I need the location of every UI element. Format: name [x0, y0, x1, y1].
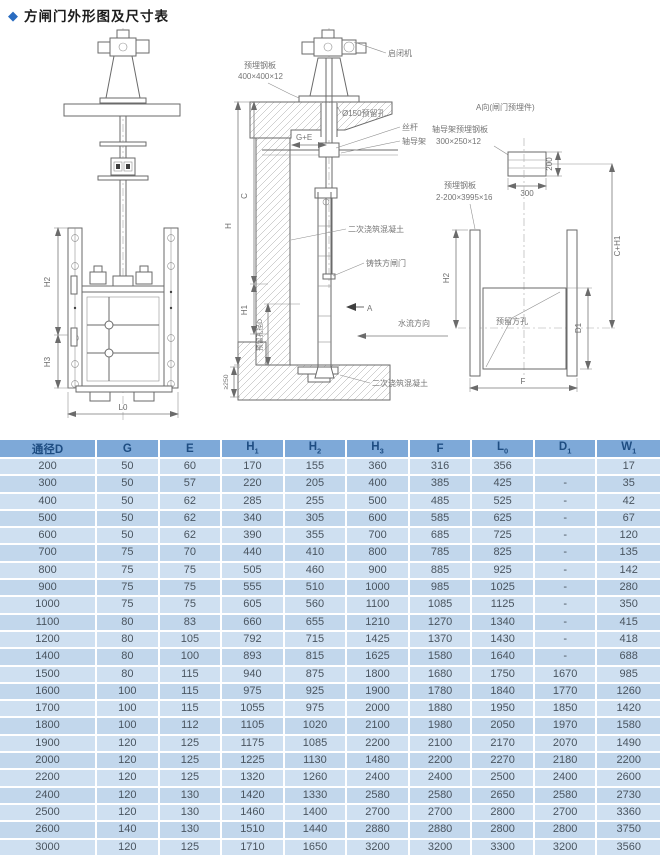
table-cell: 2100 [410, 736, 473, 753]
table-cell: 1770 [535, 684, 598, 701]
front-dim-h2: H2 [43, 276, 52, 287]
table-cell: 80 [97, 632, 160, 649]
table-cell: 255 [285, 494, 348, 511]
section-dim-hole: 预留孔径D [255, 319, 264, 351]
table-cell: 785 [410, 545, 473, 562]
table-cell: 2000 [0, 753, 97, 770]
table-row: 7007570440410800785825-135 [0, 545, 660, 562]
table-cell: 140 [97, 822, 160, 839]
table-cell: 792 [222, 632, 285, 649]
page-title-text: 方闸门外形图及尺寸表 [24, 5, 169, 25]
table-cell: 1210 [347, 615, 410, 632]
front-dim-l0: L0 [119, 403, 128, 412]
table-row: 160010011597592519001780184017701260 [0, 684, 660, 701]
table-row: 22001201251320126024002400250024002600 [0, 770, 660, 787]
header-cell: H3 [347, 440, 410, 459]
table-row: 4005062285255500485525-42 [0, 494, 660, 511]
table-cell: 1670 [535, 667, 598, 684]
table-cell: 1500 [0, 667, 97, 684]
table-cell: 2050 [472, 718, 535, 735]
label-concrete-top: 二次浇筑混凝土 [348, 224, 404, 234]
table-cell: - [535, 476, 598, 493]
table-cell: 985 [597, 667, 660, 684]
table-head-row: 通径DGEH1H2H3FL0D1W1 [0, 440, 660, 459]
table-cell: 2700 [347, 805, 410, 822]
table-cell: 80 [97, 667, 160, 684]
table-cell: 900 [347, 563, 410, 580]
table-cell: 115 [160, 667, 223, 684]
table-cell: 1900 [0, 736, 97, 753]
table-cell: 600 [0, 528, 97, 545]
table-cell: 3300 [472, 840, 535, 857]
table-cell: 350 [597, 597, 660, 614]
table-cell: 50 [97, 476, 160, 493]
table-cell: 2170 [472, 736, 535, 753]
table-cell: 1700 [0, 701, 97, 718]
table-cell: 2580 [535, 788, 598, 805]
table-cell: 1370 [410, 632, 473, 649]
table-cell: 3200 [535, 840, 598, 857]
table-cell: 2180 [535, 753, 598, 770]
table-row: 10007575605560110010851125-350 [0, 597, 660, 614]
table-cell: 700 [0, 545, 97, 562]
table-cell: 112 [160, 718, 223, 735]
a-dim-f: F [521, 377, 526, 386]
label-ge-dim: G+E [296, 133, 312, 142]
table-cell: 1260 [285, 770, 348, 787]
diamond-icon: ◆ [8, 9, 18, 22]
table-cell: 925 [285, 684, 348, 701]
table-row: 900757555551010009851025-280 [0, 580, 660, 597]
table-cell: 120 [97, 753, 160, 770]
table-cell: 1850 [535, 701, 598, 718]
table-cell: 100 [97, 684, 160, 701]
table-cell: 975 [222, 684, 285, 701]
label-embed-plate2: 预埋钢板 [444, 180, 476, 190]
table-cell: 125 [160, 770, 223, 787]
label-embed-plate2-size: 2-200×3995×16 [436, 193, 493, 202]
table-cell: 1085 [410, 597, 473, 614]
table-cell: - [535, 511, 598, 528]
table-cell: 400 [347, 476, 410, 493]
dimension-table-wrap: 通径DGEH1H2H3FL0D1W1 200506017015536031635… [0, 440, 660, 857]
table-cell: 125 [160, 753, 223, 770]
a-view-title: A向(闸门预埋件) [476, 102, 535, 112]
label-guide-plate-size: 300×250×12 [436, 137, 481, 146]
table-cell: 485 [410, 494, 473, 511]
table-row: 18001001121105102021001980205019701580 [0, 718, 660, 735]
table-cell: 555 [222, 580, 285, 597]
front-view-drawing: H2 H3 L0 [43, 28, 180, 422]
table-cell: 2200 [0, 770, 97, 787]
table-cell: 100 [97, 701, 160, 718]
table-cell: 205 [285, 476, 348, 493]
table-cell: 62 [160, 528, 223, 545]
table-cell: 2650 [472, 788, 535, 805]
table-cell: 340 [222, 511, 285, 528]
header-cell: 通径D [0, 440, 97, 459]
table-cell: 1800 [0, 718, 97, 735]
table-cell: 1680 [410, 667, 473, 684]
dimension-table: 通径DGEH1H2H3FL0D1W1 200506017015536031635… [0, 440, 660, 857]
section-dim-250: ≥250 [223, 374, 230, 389]
table-cell: 1105 [222, 718, 285, 735]
label-embed-plate: 预埋钢板 [244, 60, 276, 70]
table-cell: 280 [597, 580, 660, 597]
table-cell: 1480 [347, 753, 410, 770]
header-cell: W1 [597, 440, 660, 459]
table-cell: - [535, 649, 598, 666]
a-view-drawing: A向(闸门预埋件) 轴导架预埋钢板 300×250×12 300 200 预埋钢… [432, 102, 622, 392]
table-cell: 50 [97, 511, 160, 528]
table-cell: - [535, 632, 598, 649]
table-row: 20001201251225113014802200227021802200 [0, 753, 660, 770]
page-title: ◆ 方闸门外形图及尺寸表 [8, 5, 169, 25]
table-cell: 1780 [410, 684, 473, 701]
table-cell: 415 [597, 615, 660, 632]
table-row: 1500801159408751800168017501670985 [0, 667, 660, 684]
table-row: 19001201251175108522002100217020701490 [0, 736, 660, 753]
table-cell: 700 [347, 528, 410, 545]
table-cell: 975 [285, 701, 348, 718]
table-cell: 2700 [410, 805, 473, 822]
table-cell: 1510 [222, 822, 285, 839]
table-cell: 1950 [472, 701, 535, 718]
label-screw: 丝杆 [402, 122, 418, 132]
table-row: 24001201301420133025802580265025802730 [0, 788, 660, 805]
table-cell: 1085 [285, 736, 348, 753]
table-cell: - [535, 615, 598, 632]
table-cell: 115 [160, 684, 223, 701]
table-cell: 2200 [410, 753, 473, 770]
table-cell: 115 [160, 701, 223, 718]
label-flow-direction: 水流方向 [398, 318, 430, 328]
table-cell: 300 [0, 476, 97, 493]
table-cell: 418 [597, 632, 660, 649]
table-cell: 1900 [347, 684, 410, 701]
table-cell: 825 [472, 545, 535, 562]
table-cell: 2580 [410, 788, 473, 805]
table-cell: 356 [472, 459, 535, 476]
table-cell: 50 [97, 459, 160, 476]
table-cell: 2200 [347, 736, 410, 753]
header-cell: F [410, 440, 473, 459]
table-cell: 390 [222, 528, 285, 545]
table-cell [535, 459, 598, 476]
table-cell: 1055 [222, 701, 285, 718]
table-cell: 100 [97, 718, 160, 735]
table-cell: 70 [160, 545, 223, 562]
table-cell: 135 [597, 545, 660, 562]
table-cell: 120 [97, 840, 160, 857]
table-cell: 1260 [597, 684, 660, 701]
table-cell: 1600 [0, 684, 97, 701]
table-cell: 2270 [472, 753, 535, 770]
table-cell: 1020 [285, 718, 348, 735]
table-cell: 685 [410, 528, 473, 545]
table-row: 1700100115105597520001880195018501420 [0, 701, 660, 718]
table-cell: 525 [472, 494, 535, 511]
table-cell: 1400 [285, 805, 348, 822]
table-row: 11008083660655121012701340-415 [0, 615, 660, 632]
table-cell: 130 [160, 805, 223, 822]
header-cell: H1 [222, 440, 285, 459]
table-cell: 3200 [410, 840, 473, 857]
table-cell: 130 [160, 788, 223, 805]
table-cell: 2400 [535, 770, 598, 787]
table-cell: 360 [347, 459, 410, 476]
label-a-mark: A [367, 304, 373, 313]
table-cell: 2400 [410, 770, 473, 787]
table-cell: 1970 [535, 718, 598, 735]
table-cell: 105 [160, 632, 223, 649]
table-cell: 2880 [347, 822, 410, 839]
table-cell: 460 [285, 563, 348, 580]
table-cell: 83 [160, 615, 223, 632]
table-cell: 815 [285, 649, 348, 666]
table-cell: 800 [347, 545, 410, 562]
table-cell: 2070 [535, 736, 598, 753]
table-cell: 1580 [597, 718, 660, 735]
table-cell: 2200 [597, 753, 660, 770]
table-cell: 1330 [285, 788, 348, 805]
table-cell: 1420 [222, 788, 285, 805]
table-cell: - [535, 528, 598, 545]
table-cell: 500 [0, 511, 97, 528]
table-cell: 600 [347, 511, 410, 528]
table-cell: 1270 [410, 615, 473, 632]
table-cell: 655 [285, 615, 348, 632]
header-cell: E [160, 440, 223, 459]
table-cell: 1320 [222, 770, 285, 787]
table-cell: 2800 [472, 805, 535, 822]
table-cell: 2800 [535, 822, 598, 839]
table-cell: - [535, 563, 598, 580]
label-cast-iron-gate: 铸铁方闸门 [366, 258, 406, 268]
table-cell: 510 [285, 580, 348, 597]
outline-drawing: H2 H3 L0 [0, 26, 660, 438]
table-cell: 3560 [597, 840, 660, 857]
table-cell: 1840 [472, 684, 535, 701]
table-cell: 130 [160, 822, 223, 839]
table-row: 120080105792715142513701430-418 [0, 632, 660, 649]
section-dim-c: C [240, 193, 249, 199]
table-cell: 925 [472, 563, 535, 580]
table-cell: 125 [160, 840, 223, 857]
table-cell: 3360 [597, 805, 660, 822]
table-cell: 120 [97, 770, 160, 787]
table-cell: 440 [222, 545, 285, 562]
table-cell: 80 [97, 649, 160, 666]
table-cell: 80 [97, 615, 160, 632]
table-cell: 355 [285, 528, 348, 545]
front-dim-h3: H3 [43, 356, 52, 367]
table-cell: 425 [472, 476, 535, 493]
table-cell: 2800 [472, 822, 535, 839]
table-cell: 585 [410, 511, 473, 528]
table-cell: 142 [597, 563, 660, 580]
table-cell: 285 [222, 494, 285, 511]
table-cell: 1800 [347, 667, 410, 684]
table-cell: 715 [285, 632, 348, 649]
table-cell: 893 [222, 649, 285, 666]
table-cell: 885 [410, 563, 473, 580]
section-dim-h1: H1 [240, 304, 249, 315]
table-cell: 1130 [285, 753, 348, 770]
table-cell: 155 [285, 459, 348, 476]
table-cell: 1175 [222, 736, 285, 753]
table-cell: 1490 [597, 736, 660, 753]
table-cell: 1000 [347, 580, 410, 597]
table-cell: 2500 [0, 805, 97, 822]
table-cell: 50 [97, 494, 160, 511]
table-row: 25001201301460140027002700280027003360 [0, 805, 660, 822]
label-guide-plate: 轴导架预埋钢板 [432, 124, 488, 134]
table-row: 30001201251710165032003200330032003560 [0, 840, 660, 857]
table-cell: 875 [285, 667, 348, 684]
table-cell: 940 [222, 667, 285, 684]
label-embed-plate-size: 400×400×12 [238, 72, 283, 81]
table-cell: 100 [160, 649, 223, 666]
table-row: 140080100893815162515801640-688 [0, 649, 660, 666]
table-row: 200506017015536031635617 [0, 459, 660, 476]
table-cell: 725 [472, 528, 535, 545]
a-dim-300: 300 [520, 189, 534, 198]
table-cell: 75 [97, 597, 160, 614]
table-cell: 505 [222, 563, 285, 580]
table-row: 5005062340305600585625-67 [0, 511, 660, 528]
table-cell: 1640 [472, 649, 535, 666]
a-dim-h2: H2 [442, 272, 451, 283]
table-cell: 800 [0, 563, 97, 580]
table-cell: 1625 [347, 649, 410, 666]
table-cell: 1430 [472, 632, 535, 649]
table-cell: 1225 [222, 753, 285, 770]
table-cell: 3200 [347, 840, 410, 857]
table-cell: 2880 [410, 822, 473, 839]
table-cell: 3750 [597, 822, 660, 839]
table-cell: 120 [97, 805, 160, 822]
table-cell: 1425 [347, 632, 410, 649]
label-hoist: 启闭机 [388, 48, 412, 58]
table-cell: 1980 [410, 718, 473, 735]
table-cell: 625 [472, 511, 535, 528]
table-cell: 1650 [285, 840, 348, 857]
table-cell: 1420 [597, 701, 660, 718]
table-cell: 2100 [347, 718, 410, 735]
table-cell: 2000 [347, 701, 410, 718]
table-cell: 200 [0, 459, 97, 476]
label-concrete-bottom: 二次浇筑混凝土 [372, 378, 428, 388]
table-cell: 900 [0, 580, 97, 597]
table-row: 3005057220205400385425-35 [0, 476, 660, 493]
table-cell: 170 [222, 459, 285, 476]
header-cell: D1 [535, 440, 598, 459]
table-row: 26001401301510144028802880280028003750 [0, 822, 660, 839]
table-cell: 688 [597, 649, 660, 666]
table-cell: - [535, 545, 598, 562]
table-cell: 42 [597, 494, 660, 511]
table-cell: 125 [160, 736, 223, 753]
table-cell: 2600 [597, 770, 660, 787]
table-cell: 1440 [285, 822, 348, 839]
a-dim-ch1: C+H1 [613, 235, 622, 256]
section-dim-h: H [224, 223, 233, 229]
table-cell: 1580 [410, 649, 473, 666]
table-cell: 2500 [472, 770, 535, 787]
table-cell: 57 [160, 476, 223, 493]
table-cell: - [535, 597, 598, 614]
table-cell: 120 [97, 788, 160, 805]
table-cell: 220 [222, 476, 285, 493]
table-cell: 62 [160, 494, 223, 511]
table-row: 8007575505460900885925-142 [0, 563, 660, 580]
header-cell: G [97, 440, 160, 459]
table-cell: 2730 [597, 788, 660, 805]
table-body: 2005060170155360316356173005057220205400… [0, 459, 660, 857]
table-cell: 3000 [0, 840, 97, 857]
label-square-hole: 预留方孔 [496, 316, 528, 326]
table-cell: 75 [160, 563, 223, 580]
table-cell: 1125 [472, 597, 535, 614]
table-cell: 50 [97, 528, 160, 545]
table-cell: 305 [285, 511, 348, 528]
table-cell: 985 [410, 580, 473, 597]
table-cell: 560 [285, 597, 348, 614]
table-cell: 500 [347, 494, 410, 511]
table-cell: 385 [410, 476, 473, 493]
table-cell: 2580 [347, 788, 410, 805]
table-cell: 120 [97, 736, 160, 753]
table-cell: 2700 [535, 805, 598, 822]
table-cell: 410 [285, 545, 348, 562]
section-view-drawing: 预埋钢板 400×400×12 启闭机 Ø150预留孔 G+E 丝杆 轴导架 二… [223, 28, 448, 400]
table-cell: 1000 [0, 597, 97, 614]
table-cell: 660 [222, 615, 285, 632]
table-cell: 1200 [0, 632, 97, 649]
table-cell: 62 [160, 511, 223, 528]
table-cell: 75 [97, 580, 160, 597]
table-cell: 75 [160, 580, 223, 597]
table-cell: 400 [0, 494, 97, 511]
table-cell: 1025 [472, 580, 535, 597]
table-row: 6005062390355700685725-120 [0, 528, 660, 545]
label-guide: 轴导架 [402, 136, 426, 146]
table-cell: 2400 [0, 788, 97, 805]
table-cell: 2600 [0, 822, 97, 839]
table-cell: 1750 [472, 667, 535, 684]
table-cell: 1880 [410, 701, 473, 718]
table-cell: 2400 [347, 770, 410, 787]
header-cell: L0 [472, 440, 535, 459]
table-cell: 605 [222, 597, 285, 614]
table-cell: 75 [160, 597, 223, 614]
label-hole150: Ø150预留孔 [342, 108, 386, 118]
table-cell: 75 [97, 563, 160, 580]
table-cell: 1460 [222, 805, 285, 822]
table-cell: 1100 [0, 615, 97, 632]
table-cell: 60 [160, 459, 223, 476]
table-cell: 67 [597, 511, 660, 528]
table-cell: - [535, 580, 598, 597]
a-dim-d1: D1 [574, 322, 583, 333]
table-cell: 316 [410, 459, 473, 476]
table-cell: 35 [597, 476, 660, 493]
table-cell: 1400 [0, 649, 97, 666]
table-cell: 1340 [472, 615, 535, 632]
table-cell: 1100 [347, 597, 410, 614]
table-cell: 120 [597, 528, 660, 545]
